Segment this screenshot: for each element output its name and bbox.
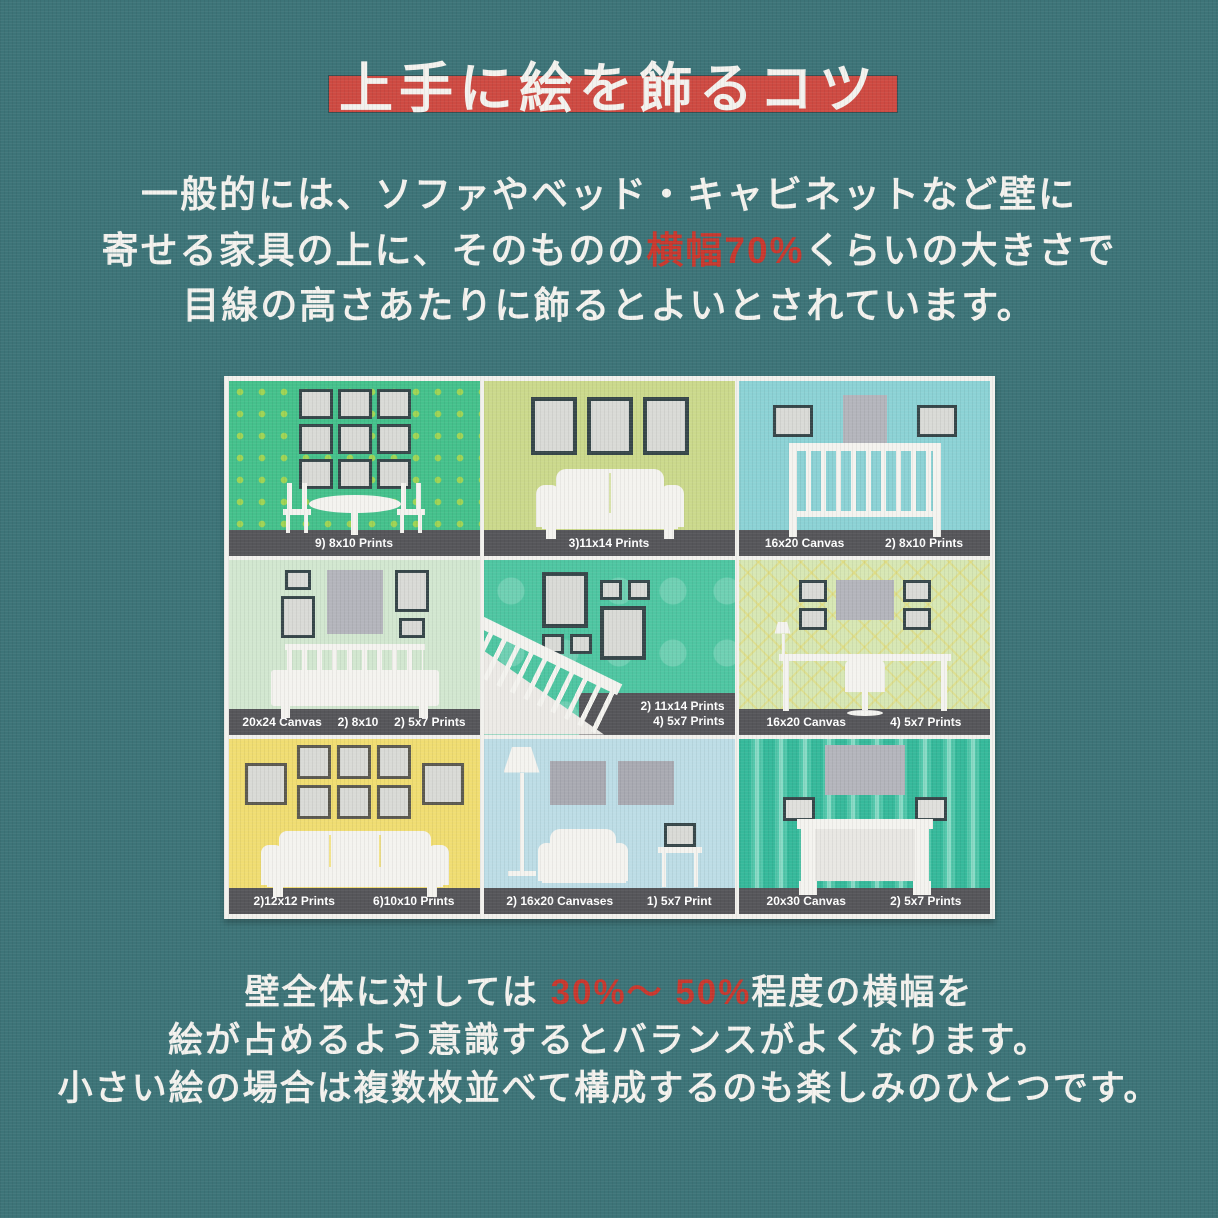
framed-print [903,580,931,602]
outro-line-1: 壁全体に対しては 30%～ 50%程度の横幅を [58,969,1161,1017]
caption-band: 16x20 Canvas 2) 8x10 Prints [739,530,990,556]
framed-print [628,580,650,600]
room-blue-living: 2) 16x20 Canvases 1) 5x7 Print [484,739,735,914]
fireplace-opening [815,829,915,881]
framed-print [643,397,689,455]
bed-body [271,670,439,706]
intro-line-2-post: くらいの大きさで [804,230,1116,271]
intro-paragraph: 一般的には、ソファやベッド・キャビネットなど壁に 寄せる家具の上に、そのものの横… [102,167,1117,334]
framed-print [783,797,815,821]
caption-text: 2) 16x20 Canvases [506,894,613,908]
framed-print [338,389,372,419]
page-title-text: 上手に絵を飾るコツ [339,44,879,123]
page-title: 上手に絵を飾るコツ [339,44,879,123]
outro-line-3-text: 小さい絵の場合は複数枚並べて構成するのも楽しみのひとつです。 [58,1069,1161,1108]
room-nursery: 16x20 Canvas 2) 8x10 Prints [739,381,990,556]
table-lamp [775,622,791,634]
headboard-slats [287,650,423,672]
room-console: 16x20 Canvas 4) 5x7 Prints [739,560,990,735]
chair-leg [418,515,422,533]
floor-lamp-pole [520,773,524,873]
chair-back [845,660,885,692]
canvas-art [550,761,606,805]
caption-text: 6)10x10 Prints [373,894,454,908]
outro-line-1-highlight: 30%～ 50% [551,973,752,1012]
sofa-foot [427,887,437,897]
room-staircase: 2) 11x14 Prints 4) 5x7 Prints [484,560,735,735]
caption-text: 2)12x12 Prints [254,894,335,908]
fireplace-foot [799,881,817,895]
crib-top-rail [789,443,941,451]
framed-print [377,745,411,779]
sofa-back [279,831,431,869]
side-table-leg [662,853,666,887]
console-table-leg [941,661,947,711]
chair-leg [400,515,404,533]
armchair-seat [542,867,626,883]
caption-band: 20x24 Canvas 2) 8x10 2) 5x7 Prints [229,709,480,735]
caption-band: 2)12x12 Prints 6)10x10 Prints [229,888,480,914]
chair-leg [286,515,290,533]
chair-pedestal [862,692,868,710]
framed-print [299,424,333,454]
outro-line-3: 小さい絵の場合は複数枚並べて構成するのも楽しみのひとつです。 [58,1065,1161,1113]
framed-print [799,608,827,630]
intro-line-3-text: 目線の高さあたりに飾るとよいとされています。 [182,285,1035,326]
framed-print [570,634,592,654]
intro-line-1: 一般的には、ソファやベッド・キャビネットなど壁に [102,167,1117,223]
framed-print [337,785,371,819]
fireplace-foot [913,881,931,895]
framed-print [587,397,633,455]
crib-foot [789,527,797,537]
framed-print [395,570,429,612]
infographic-poster: { "colors": { "background": "#3D7478", "… [0,0,1218,1218]
cushion-seam [329,835,331,867]
framed-print [245,763,287,805]
intro-line-2-highlight: 横幅70% [646,230,804,271]
outro-paragraph: 壁全体に対しては 30%～ 50%程度の横幅を 絵が占めるよう意識するとバランス… [58,969,1161,1114]
console-table-leg [783,661,789,711]
fireplace-leg-left [801,829,815,881]
room-loveseat: 3)11x14 Prints [484,381,735,556]
crib-base-rail [791,511,939,517]
chair-back-right [401,483,423,509]
intro-line-2-pre: 寄せる家具の上に、そのものの [102,230,647,271]
canvas-art [825,745,905,795]
framed-print [297,785,331,819]
canvas-art [843,395,887,449]
framed-print [422,763,464,805]
caption-text: 16x20 Canvas [767,715,846,729]
framed-print [600,580,622,600]
outro-line-1-post: 程度の横幅を [751,973,973,1012]
framed-print [600,606,646,660]
chair-base [847,710,883,716]
outro-line-2: 絵が占めるよう意識するとバランスがよくなります。 [58,1017,1161,1065]
caption-band: 20x30 Canvas 2) 5x7 Prints [739,888,990,914]
framed-print [399,618,425,638]
floor-lamp-shade [504,747,540,773]
bed-foot [419,706,428,718]
framed-print [531,397,577,455]
caption-band: 2) 16x20 Canvases 1) 5x7 Print [484,888,735,914]
caption-text: 4) 5x7 Prints [890,715,961,729]
framed-print [337,745,371,779]
intro-line-3: 目線の高さあたりに飾るとよいとされています。 [102,278,1117,334]
caption-text: 2) 5x7 Prints [890,894,961,908]
intro-line-1-text: 一般的には、ソファやベッド・キャビネットなど壁に [141,174,1077,215]
framed-print [542,572,588,628]
side-table-leg [694,853,698,887]
dining-table-pedestal [351,509,358,535]
framed-print [338,424,372,454]
caption-text: 2) 8x10 [338,715,379,729]
framed-print [338,459,372,489]
fireplace-mantel [797,819,933,829]
framed-print [773,405,813,437]
loveseat-foot [546,529,556,539]
caption-text: 2) 5x7 Prints [394,715,465,729]
caption-text: 16x20 Canvas [765,536,844,550]
room-examples-grid: 9) 8x10 Prints 3)11x14 Prints 16x20 Canv… [224,376,995,919]
caption-text: 20x30 Canvas [767,894,846,908]
outro-line-2-text: 絵が占めるよう意識するとバランスがよくなります。 [168,1021,1050,1060]
room-bedroom: 20x24 Canvas 2) 8x10 2) 5x7 Prints [229,560,480,735]
crib-foot [933,527,941,537]
canvas-art [618,761,674,805]
framed-print [915,797,947,821]
framed-print [799,580,827,602]
outro-line-1-pre: 壁全体に対しては [245,973,551,1012]
canvas-art [836,580,894,620]
floor-lamp-base [508,871,536,876]
framed-print [917,405,957,437]
cushion-seam [609,473,611,513]
bed-foot [281,706,290,718]
framed-print [377,785,411,819]
armchair-back [550,829,616,871]
chair-back-left [287,483,309,509]
caption-text: 2) 8x10 Prints [885,536,963,550]
caption-text: 3)11x14 Prints [569,536,650,550]
framed-print [377,389,411,419]
table-lamp-pole [782,634,785,654]
chair-leg [304,515,308,533]
framed-print [299,389,333,419]
room-dining: 9) 8x10 Prints [229,381,480,556]
room-yellow-living: 2)12x12 Prints 6)10x10 Prints [229,739,480,914]
caption-text: 9) 8x10 Prints [315,536,393,550]
framed-print [377,424,411,454]
intro-line-2: 寄せる家具の上に、そのものの横幅70%くらいの大きさで [102,223,1117,279]
framed-print [903,608,931,630]
canvas-art [327,570,383,634]
cushion-seam [379,835,381,867]
framed-print [281,596,315,638]
sofa-seat [267,867,443,887]
caption-text: 2) 11x14 Prints [640,699,724,713]
framed-print [297,745,331,779]
crib-slats [791,451,939,517]
standing-framed-print [664,823,696,847]
caption-text: 1) 5x7 Print [647,894,712,908]
fireplace-leg-right [915,829,929,881]
sofa-foot [273,887,283,897]
caption-band: 3)11x14 Prints [484,530,735,556]
caption-text: 4) 5x7 Prints [653,714,724,728]
room-fireplace: 20x30 Canvas 2) 5x7 Prints [739,739,990,914]
loveseat-seat [542,511,678,529]
loveseat-foot [664,529,674,539]
framed-print [285,570,311,590]
